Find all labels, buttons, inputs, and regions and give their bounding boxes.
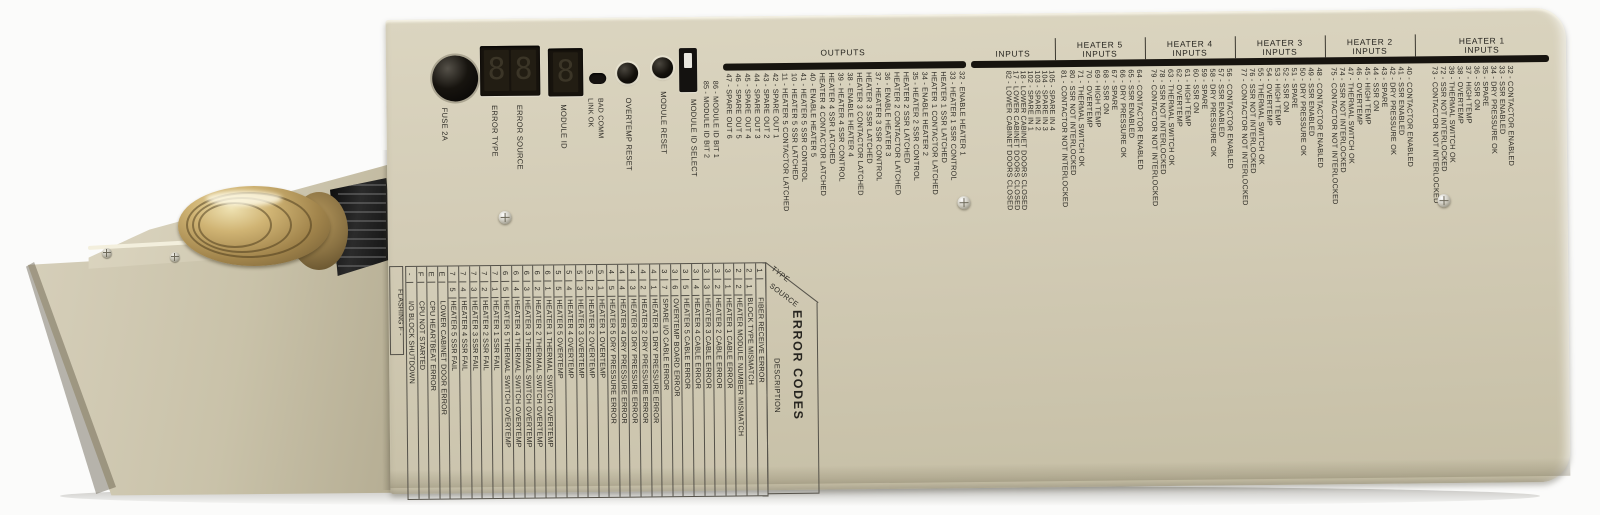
overtemp-reset-button[interactable] bbox=[617, 63, 638, 84]
error-type-label: ERROR TYPE bbox=[490, 105, 498, 157]
error-type-value: E bbox=[427, 267, 435, 283]
error-source-value: 5 bbox=[449, 282, 457, 298]
error-description: HEATER 4 DRY PRESSURE ERROR bbox=[618, 299, 629, 424]
error-description-text: HEATER 1 CABLE ERROR bbox=[725, 298, 733, 389]
error-source-value: 4 bbox=[512, 282, 520, 298]
error-description: SPARE I/O CABLE ERROR bbox=[661, 298, 672, 390]
connector-thread bbox=[198, 202, 272, 248]
error-description: LOWER CABINET DOOR ERROR bbox=[438, 301, 449, 416]
error-description-text: HEATER 2 CABLE ERROR bbox=[715, 298, 723, 389]
error-type-value: - bbox=[406, 267, 414, 283]
bad-comm-label: BAD COMM bbox=[596, 98, 603, 139]
error-source-value: 2 bbox=[639, 280, 647, 296]
heater-2-signal-list: 75 - CONTACTOR NOT INTERLOCKED74 - SSR N… bbox=[1329, 66, 1415, 267]
heater-2-inputs-title: HEATER 2INPUTS bbox=[1325, 37, 1415, 56]
error-type-value: 3 bbox=[671, 264, 679, 280]
error-description: HEATER 4 CABLE ERROR bbox=[693, 298, 704, 389]
error-description-text: HEATER 5 OVERTEMP bbox=[556, 299, 564, 378]
error-source-value: 7 bbox=[661, 280, 669, 296]
outputs-title: OUTPUTS bbox=[763, 48, 923, 58]
error-table-header: TYPE SOURCE ERROR CODES DESCRIPTION bbox=[765, 262, 819, 495]
error-type-value: 7 bbox=[449, 266, 457, 282]
error-type-value: 5 bbox=[576, 265, 584, 281]
description-column-header: DESCRIPTION bbox=[773, 358, 781, 413]
screw bbox=[102, 248, 112, 258]
module-reset-label: MODULE RESET bbox=[659, 91, 667, 154]
error-description-text: CPU HEARTBEAT ERROR bbox=[429, 301, 437, 391]
error-description-text: LOWER CABINET DOOR ERROR bbox=[439, 301, 447, 416]
header-divider-rule bbox=[1325, 35, 1326, 57]
error-source-value: 4 bbox=[459, 282, 467, 298]
input-signal-label: 105 - SPARE IN 4 bbox=[1048, 70, 1056, 131]
error-source-value: 1 bbox=[597, 281, 605, 297]
error-description: HEATER 4 OVERTEMP bbox=[565, 299, 575, 378]
error-source-value: 2 bbox=[533, 282, 541, 298]
error-description: HEATER 3 THERMAL SWITCH OVERTEMP bbox=[523, 300, 534, 448]
flashing-f-note: FLASHING F - bbox=[389, 266, 404, 355]
error-description-text: FIBER RECEIVE ERROR bbox=[757, 297, 765, 383]
inputs-title: INPUTS bbox=[971, 49, 1055, 59]
error-type-value: 1 bbox=[756, 263, 764, 279]
error-description: HEATER 1 CABLE ERROR bbox=[724, 298, 735, 389]
error-source-value: 3 bbox=[703, 280, 711, 296]
heater-5-signal-list: 81 - CONTACTOR NOT INTERLOCKED80 - SSR N… bbox=[1059, 69, 1145, 270]
error-description-text: HEATER 2 SSR FAIL bbox=[482, 300, 490, 371]
heater-control-module-photo: FUSE 2A 8 8 ERROR TYPE ERROR SOURCE 8 MO… bbox=[0, 0, 1600, 515]
link-ok-label: LINK OK bbox=[586, 98, 593, 127]
screw bbox=[170, 252, 180, 262]
module-id-digit: 8 bbox=[553, 52, 578, 92]
error-source-value: 4 bbox=[692, 280, 700, 296]
error-description: HEATER 2 OVERTEMP bbox=[587, 299, 597, 378]
header-divider-rule bbox=[1415, 34, 1416, 56]
error-description-text: HEATER 4 OVERTEMP bbox=[567, 299, 575, 378]
module-id-display: 8 bbox=[548, 48, 584, 96]
module-id-bit-labels: 85 - MODULE ID BIT 286 - MODULE ID BIT 1 bbox=[700, 81, 721, 251]
error-description-text: BLOCK TYPE MISMATCH bbox=[747, 297, 755, 385]
error-type-value: 5 bbox=[597, 265, 605, 281]
error-description-text: HEATER 3 CABLE ERROR bbox=[704, 298, 712, 389]
error-description-text: HEATER 2 THERMAL SWITCH OVERTEMP bbox=[535, 300, 544, 448]
heater-4-inputs-title: HEATER 4INPUTS bbox=[1145, 39, 1235, 58]
error-source-digit: 8 bbox=[511, 50, 536, 91]
error-description-text: HEATER 3 OVERTEMP bbox=[577, 299, 585, 378]
heater-5-inputs-title: HEATER 5INPUTS bbox=[1055, 40, 1145, 59]
chassis-side-face bbox=[24, 236, 404, 498]
error-type-value: 3 bbox=[713, 264, 721, 280]
error-type-value: 6 bbox=[523, 266, 531, 282]
error-description-text: HEATER 3 DRY PRESSURE ERROR bbox=[630, 299, 639, 424]
error-description-text: I/O BLOCK SHUTDOWN bbox=[408, 301, 416, 384]
header-divider-rule bbox=[1235, 36, 1236, 58]
inputs-signal-list: 82 - LOWER CABINET DOORS CLOSED17 - LOWE… bbox=[1005, 70, 1058, 271]
screw bbox=[957, 196, 970, 209]
error-type-value: 7 bbox=[459, 266, 467, 282]
error-type-value: 6 bbox=[544, 265, 552, 281]
front-panel: FUSE 2A 8 8 ERROR TYPE ERROR SOURCE 8 MO… bbox=[386, 8, 1571, 494]
screw bbox=[499, 211, 512, 224]
error-description-text: HEATER 5 THERMAL SWITCH OVERTEMP bbox=[503, 300, 512, 448]
error-source-label: ERROR SOURCE bbox=[515, 105, 523, 170]
error-type-value: 6 bbox=[501, 266, 509, 282]
error-source-value: 3 bbox=[523, 282, 531, 298]
error-description: HEATER 1 OVERTEMP bbox=[597, 299, 607, 378]
module-reset-button[interactable] bbox=[652, 57, 673, 78]
error-source-value: 1 bbox=[491, 282, 499, 298]
module-id-select-label: MODULE ID SELECT bbox=[689, 99, 697, 177]
error-description-text: HEATER 4 SSR FAIL bbox=[461, 300, 469, 371]
error-description-text: HEATER 1 DRY PRESSURE ERROR bbox=[651, 298, 660, 423]
heater-4-signal-list: 79 - CONTACTOR NOT INTERLOCKED78 - SSR N… bbox=[1149, 68, 1235, 269]
error-description: CPU HEARTBEAT ERROR bbox=[428, 301, 439, 391]
heater-3-signal-list: 77 - CONTACTOR NOT INTERLOCKED76 - SSR N… bbox=[1239, 67, 1325, 268]
outputs-signal-list: 47 - SPARE OUT 646 - SPARE OUT 545 - SPA… bbox=[723, 71, 968, 274]
error-type-digit: 8 bbox=[484, 50, 509, 91]
error-description: HEATER 2 THERMAL SWITCH OVERTEMP bbox=[534, 300, 545, 448]
error-description-text: HEATER 1 SSR FAIL bbox=[492, 300, 500, 371]
output-signal-label: 32 - ENABLE HEATER 1 bbox=[956, 71, 966, 156]
error-description: HEATER MODULE NUMBER MISMATCH bbox=[735, 297, 746, 436]
heater-section-titles: HEATER 5INPUTSHEATER 4INPUTSHEATER 3INPU… bbox=[386, 8, 1566, 20]
circular-threaded-connector bbox=[178, 186, 330, 266]
error-codes-table: -I/O BLOCK SHUTDOWNFCPU NOT STARTEDECPU … bbox=[405, 262, 819, 498]
error-description-text: HEATER 1 THERMAL SWITCH OVERTEMP bbox=[545, 299, 554, 447]
header-right-border bbox=[817, 303, 820, 493]
error-description-text: HEATER 3 THERMAL SWITCH OVERTEMP bbox=[524, 300, 533, 448]
error-type-value: 4 bbox=[650, 264, 658, 280]
error-source-value: 5 bbox=[608, 281, 616, 297]
error-source-value: 3 bbox=[470, 282, 478, 298]
heater-input-signal-label: 40 - CONTACTOR ENABLED bbox=[1405, 66, 1414, 167]
fuse-label: FUSE 2A bbox=[440, 108, 448, 141]
error-type-value: 3 bbox=[703, 264, 711, 280]
error-type-value: 4 bbox=[629, 265, 637, 281]
error-source-value: 1 bbox=[544, 281, 552, 297]
error-type-value: 2 bbox=[745, 263, 753, 279]
error-description-text: HEATER 4 THERMAL SWITCH OVERTEMP bbox=[514, 300, 523, 448]
heater-1-inputs-title: HEATER 1INPUTS bbox=[1415, 36, 1549, 55]
error-type-value: 3 bbox=[692, 264, 700, 280]
error-description-text: HEATER 5 DRY PRESSURE ERROR bbox=[609, 299, 618, 424]
error-type-value: 7 bbox=[470, 266, 478, 282]
error-description-text: HEATER 2 OVERTEMP bbox=[588, 299, 596, 378]
error-type-value: E bbox=[438, 267, 446, 283]
error-description-text: HEATER 5 CABLE ERROR bbox=[683, 298, 691, 389]
screw bbox=[1437, 194, 1450, 207]
heater-signal-lists: 81 - CONTACTOR NOT INTERLOCKED80 - SSR N… bbox=[386, 8, 1566, 20]
error-description: HEATER 5 THERMAL SWITCH OVERTEMP bbox=[502, 300, 513, 448]
error-description: HEATER 5 CABLE ERROR bbox=[682, 298, 693, 389]
error-description-text: HEATER 1 OVERTEMP bbox=[598, 299, 606, 378]
error-description: HEATER 2 CABLE ERROR bbox=[714, 298, 725, 389]
header-divider-rule bbox=[1055, 38, 1056, 60]
heater-input-signal-label: 56 - CONTACTOR ENABLED bbox=[1225, 68, 1234, 169]
error-type-value: 4 bbox=[639, 264, 647, 280]
error-description: HEATER 5 SSR FAIL bbox=[449, 300, 459, 371]
error-description: HEATER 3 CABLE ERROR bbox=[703, 298, 714, 389]
error-source-value: 3 bbox=[629, 281, 637, 297]
error-description: HEATER 4 THERMAL SWITCH OVERTEMP bbox=[512, 300, 523, 448]
error-description: I/O BLOCK SHUTDOWN bbox=[406, 301, 416, 384]
heater-1-signal-list: 73 - CONTACTOR NOT INTERLOCKED72 - SSR N… bbox=[1430, 65, 1516, 266]
module-id-select-switch[interactable] bbox=[679, 48, 697, 92]
error-codes-title: ERROR CODES bbox=[791, 310, 805, 421]
error-description: HEATER 2 SSR FAIL bbox=[481, 300, 491, 371]
error-type-value: 2 bbox=[735, 263, 743, 279]
error-type-value: 6 bbox=[512, 266, 520, 282]
error-description-text: HEATER 4 DRY PRESSURE ERROR bbox=[620, 299, 629, 424]
error-source-value: 2 bbox=[586, 281, 594, 297]
error-type-value: 5 bbox=[554, 265, 562, 281]
error-description: CPU NOT STARTED bbox=[417, 301, 427, 370]
error-source-value: 1 bbox=[650, 280, 658, 296]
error-description: HEATER 4 SSR FAIL bbox=[459, 300, 469, 371]
error-description: HEATER 5 OVERTEMP bbox=[555, 299, 565, 378]
error-description: OVERTEMP BOARD ERROR bbox=[671, 298, 682, 397]
switch-slider bbox=[684, 53, 692, 68]
error-source-value: 1 bbox=[724, 280, 732, 296]
error-description: HEATER 1 DRY PRESSURE ERROR bbox=[650, 298, 661, 423]
error-source-value: 5 bbox=[555, 281, 563, 297]
error-description: HEATER 5 DRY PRESSURE ERROR bbox=[608, 299, 619, 424]
error-description-text: HEATER 4 CABLE ERROR bbox=[694, 298, 702, 389]
error-type-value: 4 bbox=[618, 265, 626, 281]
error-description-text: HEATER 2 DRY PRESSURE ERROR bbox=[641, 298, 650, 423]
error-source-value: 1 bbox=[745, 279, 753, 295]
error-description: HEATER 1 SSR FAIL bbox=[491, 300, 501, 371]
error-description: HEATER 3 DRY PRESSURE ERROR bbox=[629, 299, 640, 424]
header-divider-rule bbox=[1145, 37, 1146, 59]
error-description: HEATER 1 THERMAL SWITCH OVERTEMP bbox=[544, 299, 555, 447]
error-type-value: 3 bbox=[660, 264, 668, 280]
error-type-value: F bbox=[417, 267, 425, 283]
error-description: BLOCK TYPE MISMATCH bbox=[745, 297, 756, 385]
error-source-value: 2 bbox=[714, 280, 722, 296]
error-description-text: SPARE I/O CABLE ERROR bbox=[662, 298, 670, 390]
error-source-value: 2 bbox=[480, 282, 488, 298]
error-type-value: 3 bbox=[724, 264, 732, 280]
fuse-holder[interactable] bbox=[432, 55, 478, 101]
error-source-value: 6 bbox=[671, 280, 679, 296]
error-source-value: 5 bbox=[682, 280, 690, 296]
error-description: HEATER 3 OVERTEMP bbox=[576, 299, 586, 378]
connector-highlight bbox=[206, 191, 282, 206]
error-description-text: HEATER MODULE NUMBER MISMATCH bbox=[736, 297, 745, 436]
error-description: HEATER 2 DRY PRESSURE ERROR bbox=[640, 298, 651, 423]
error-source-value: 5 bbox=[502, 282, 510, 298]
error-description: HEATER 3 SSR FAIL bbox=[470, 300, 480, 371]
error-type-value: 6 bbox=[533, 266, 541, 282]
error-type-value: 5 bbox=[565, 265, 573, 281]
error-type-value: 7 bbox=[491, 266, 499, 282]
module-id-bit-label: 86 - MODULE ID BIT 1 bbox=[710, 81, 720, 158]
heater-input-signal-label: 32 - CONTACTOR ENABLED bbox=[1506, 65, 1515, 166]
error-type-value: 3 bbox=[682, 264, 690, 280]
error-source-value: 4 bbox=[565, 281, 573, 297]
module-id-label: MODULE ID bbox=[559, 104, 567, 149]
error-source-value: 4 bbox=[618, 281, 626, 297]
overtemp-reset-label: OVERTEMP RESET bbox=[624, 98, 632, 171]
error-description-text: CPU NOT STARTED bbox=[418, 301, 426, 370]
error-description-text: HEATER 3 SSR FAIL bbox=[471, 300, 479, 371]
error-type-value: 7 bbox=[480, 266, 488, 282]
error-type-value: 4 bbox=[607, 265, 615, 281]
error-source-value: 2 bbox=[735, 279, 743, 295]
link-status-led bbox=[589, 73, 606, 84]
error-description-text: OVERTEMP BOARD ERROR bbox=[673, 298, 681, 397]
error-seven-segment-display: 8 8 bbox=[480, 46, 541, 97]
error-type-value: 5 bbox=[586, 265, 594, 281]
error-source-value: 3 bbox=[576, 281, 584, 297]
heater-input-signal-label: 64 - CONTACTOR ENABLED bbox=[1135, 69, 1144, 170]
error-code-columns: -I/O BLOCK SHUTDOWNFCPU NOT STARTEDECPU … bbox=[405, 262, 769, 500]
error-description-text: HEATER 5 SSR FAIL bbox=[450, 300, 458, 371]
heater-3-inputs-title: HEATER 3INPUTS bbox=[1235, 38, 1325, 57]
heater-input-signal-label: 48 - CONTACTOR ENABLED bbox=[1315, 67, 1324, 168]
outputs-header-bar bbox=[723, 61, 966, 71]
